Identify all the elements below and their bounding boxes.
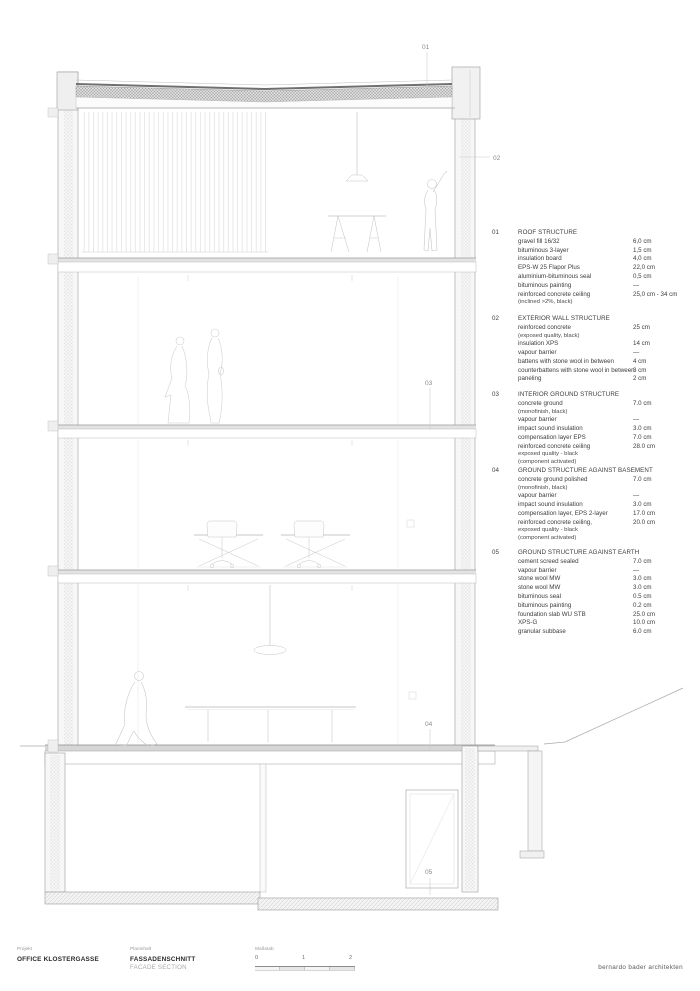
layer-row: bituminous painting— — [492, 282, 697, 291]
scale-tick-2: 2 — [349, 955, 352, 961]
layer-note: (component activated) — [492, 535, 697, 543]
architect-firm-name: bernardo bader architekten — [598, 964, 683, 971]
layer-row: aluminium-bituminous seal0,5 cm — [492, 273, 697, 282]
sheet-title-en: FACADE SECTION — [130, 964, 196, 971]
sheet-label: Planinhalt — [130, 947, 196, 952]
note-title: INTERIOR GROUND STRUCTURE — [518, 391, 697, 400]
marker-05: 05 — [425, 869, 433, 876]
marker-02: 02 — [493, 155, 501, 162]
basement-partition-wall — [260, 764, 266, 892]
layer-row: foundation slab WU STB25.0 cm — [492, 611, 697, 620]
note-block-ground-structure-against-basement: 04GROUND STRUCTURE AGAINST BASEMENT conc… — [492, 467, 697, 543]
note-title: ROOF STRUCTURE — [518, 229, 697, 238]
wall-switch — [407, 520, 414, 527]
curtain-slats — [82, 112, 268, 252]
right-parapet — [452, 67, 480, 119]
note-block-ground-structure-against-earth: 05GROUND STRUCTURE AGAINST EARTH cement … — [492, 549, 697, 637]
person-figure — [115, 672, 157, 747]
note-block-interior-ground-structure: 03INTERIOR GROUND STRUCTURE concrete gro… — [492, 391, 697, 467]
note-number: 03 — [492, 391, 518, 400]
titleblock-sheet: Planinhalt FASSADENSCHNITT FACADE SECTIO… — [130, 947, 196, 971]
layer-note: exposed quality - black — [492, 527, 697, 535]
layer-row: vapour barrier— — [492, 349, 697, 358]
layer-note: (exposed quality, black) — [492, 333, 697, 341]
top-floor-room — [82, 112, 447, 252]
dining-table — [185, 707, 356, 742]
layer-row: compensation layer EPS7.0 cm — [492, 434, 697, 443]
trestle-table — [328, 216, 386, 252]
roof-structure — [76, 80, 455, 108]
titleblock-project: Projekt OFFICE KLOSTERGASSE — [17, 947, 99, 963]
ground-floor-slab — [45, 745, 495, 764]
layer-row: vapour barrier— — [492, 492, 697, 501]
layer-row: battens with stone wool in between4 cm — [492, 358, 697, 367]
note-number: 05 — [492, 549, 518, 558]
layer-row: bituminous painting0.2 cm — [492, 602, 697, 611]
layer-row: impact sound insulation3.0 cm — [492, 425, 697, 434]
person-figure — [424, 171, 447, 251]
person-figure — [165, 337, 190, 423]
level-2-room — [138, 440, 398, 568]
layer-row: reinforced concrete ceiling28.0 cm — [492, 443, 697, 452]
layer-row: gravel fill 16/326,0 cm — [492, 238, 697, 247]
left-parapet — [57, 72, 78, 110]
window-sill-details — [48, 108, 58, 752]
pendant-lamp — [254, 585, 286, 655]
floor-slab-4 — [58, 258, 476, 272]
layer-note: (monofinish, black) — [492, 409, 697, 417]
layer-row: stone wool MW3.0 cm — [492, 575, 697, 584]
pendant-lamp — [346, 112, 368, 181]
layer-row: bituminous seal0.5 cm — [492, 593, 697, 602]
scale-bar-graphic — [255, 966, 355, 971]
note-block-exterior-wall-structure: 02EXTERIOR WALL STRUCTURE reinforced con… — [492, 315, 697, 384]
project-label: Projekt — [17, 947, 99, 952]
layer-row: concrete ground polished7.0 cm — [492, 476, 697, 485]
scale-bar: Maßstab 0 1 2 — [255, 947, 357, 971]
layer-note: exposed quality - black — [492, 451, 697, 459]
layer-note: (inclined >2%, black) — [492, 299, 697, 307]
note-number: 02 — [492, 315, 518, 324]
right-exterior-wall — [407, 67, 480, 746]
layer-row: bituminous 3-layer1,5 cm — [492, 247, 697, 256]
ground-floor-room — [115, 585, 398, 746]
layer-note: (component activated) — [492, 459, 697, 467]
layer-row: paneling2 cm — [492, 375, 697, 384]
level-3-room — [138, 275, 398, 423]
basement — [45, 746, 478, 892]
left-exterior-wall — [57, 72, 78, 753]
terrain-line — [20, 688, 683, 746]
layer-row: granular subbase6.0 cm — [492, 628, 697, 637]
note-title: GROUND STRUCTURE AGAINST EARTH — [518, 549, 697, 558]
project-name: OFFICE KLOSTERGASSE — [17, 956, 99, 963]
marker-04: 04 — [425, 721, 433, 728]
note-block-roof-structure: 01ROOF STRUCTURE gravel fill 16/326,0 cm… — [492, 229, 697, 307]
note-number: 01 — [492, 229, 518, 238]
marker-01: 01 — [422, 44, 430, 51]
layer-row: reinforced concrete25 cm — [492, 324, 697, 333]
layer-row: XPS-G10.0 cm — [492, 619, 697, 628]
drawing-sheet: 01 02 03 04 05 01ROOF STRUCTURE gravel f… — [0, 0, 700, 991]
sheet-title-de: FASSADENSCHNITT — [130, 956, 196, 963]
scale-tick-labels: 0 1 2 — [255, 955, 357, 964]
layer-row: impact sound insulation3.0 cm — [492, 501, 697, 510]
scale-tick-1: 1 — [302, 955, 305, 961]
layer-row: cement screed sealed7.0 cm — [492, 558, 697, 567]
layer-row: insulation XPS14 cm — [492, 340, 697, 349]
layer-row: compensation layer, EPS 2-layer17.0 cm — [492, 510, 697, 519]
office-chair — [207, 521, 237, 568]
note-number: 04 — [492, 467, 518, 476]
layer-row: reinforced concrete ceiling25,0 cm - 34 … — [492, 291, 697, 300]
layer-row: reinforced concrete ceiling,20.0 cm — [492, 519, 697, 528]
office-chair — [294, 521, 324, 568]
floor-slab-2 — [58, 570, 476, 583]
note-title: EXTERIOR WALL STRUCTURE — [518, 315, 697, 324]
marker-03: 03 — [425, 380, 433, 387]
scale-label: Maßstab — [255, 947, 357, 952]
layer-row: stone wool MW3.0 cm — [492, 584, 697, 593]
wall-switch — [409, 692, 416, 699]
layer-row: vapour barrier— — [492, 567, 697, 576]
layer-note: (monofinish, black) — [492, 485, 697, 493]
layer-row: counterbattens with stone wool in betwee… — [492, 367, 697, 376]
layer-row: insulation board4,0 cm — [492, 255, 697, 264]
person-figure — [207, 329, 223, 423]
note-title: GROUND STRUCTURE AGAINST BASEMENT — [518, 467, 697, 476]
floor-slab-3 — [58, 425, 476, 438]
scale-tick-0: 0 — [255, 955, 258, 961]
layer-row: vapour barrier— — [492, 416, 697, 425]
layer-row: EPS-W 25 Flapor Plus22,0 cm — [492, 264, 697, 273]
layer-row: concrete ground7.0 cm — [492, 400, 697, 409]
